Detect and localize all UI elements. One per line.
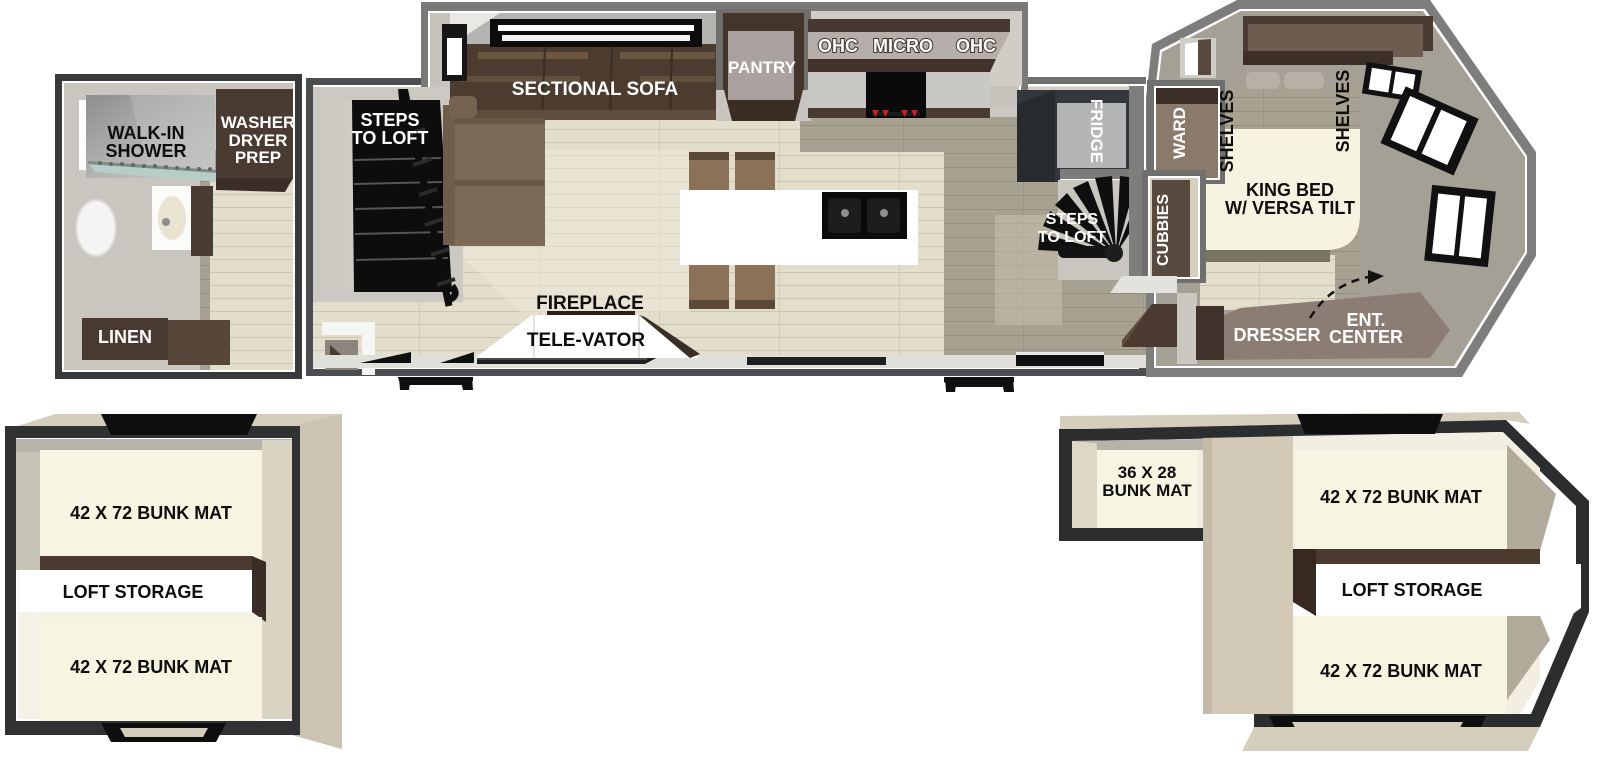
svg-text:FRIDGE: FRIDGE [1087, 99, 1106, 163]
svg-text:42 X 72 BUNK MAT: 42 X 72 BUNK MAT [1320, 661, 1482, 681]
svg-text:MICRO: MICRO [873, 36, 933, 56]
svg-text:BUNK MAT: BUNK MAT [1102, 481, 1192, 500]
svg-text:WARD: WARD [1170, 107, 1189, 159]
svg-text:PANTRY: PANTRY [728, 58, 797, 77]
svg-text:LOFT STORAGE: LOFT STORAGE [1342, 580, 1483, 600]
svg-text:SHOWER: SHOWER [106, 141, 187, 161]
svg-text:SECTIONAL SOFA: SECTIONAL SOFA [512, 79, 679, 100]
svg-text:OHC: OHC [956, 36, 996, 56]
svg-text:42 X 72 BUNK MAT: 42 X 72 BUNK MAT [70, 503, 232, 523]
svg-text:STEPS: STEPS [360, 110, 419, 130]
svg-text:SHELVES: SHELVES [1217, 90, 1237, 173]
svg-text:CUBBIES: CUBBIES [1155, 194, 1172, 266]
svg-text:W/ VERSA TILT: W/ VERSA TILT [1225, 198, 1355, 218]
svg-text:STEPS: STEPS [1046, 211, 1099, 228]
svg-text:CENTER: CENTER [1329, 327, 1403, 347]
svg-text:FIREPLACE: FIREPLACE [536, 293, 644, 314]
svg-text:OHC: OHC [818, 36, 858, 56]
svg-text:SHELVES: SHELVES [1333, 70, 1353, 153]
svg-text:36 X 28: 36 X 28 [1118, 463, 1177, 482]
svg-text:TELE-VATOR: TELE-VATOR [527, 330, 646, 351]
svg-text:DRESSER: DRESSER [1233, 325, 1320, 345]
svg-text:PREP: PREP [235, 148, 281, 167]
svg-text:LINEN: LINEN [98, 327, 152, 347]
svg-text:42 X 72 BUNK MAT: 42 X 72 BUNK MAT [70, 657, 232, 677]
svg-text:42 X 72 BUNK MAT: 42 X 72 BUNK MAT [1320, 487, 1482, 507]
svg-text:TO LOFT: TO LOFT [352, 128, 429, 148]
svg-text:LOFT STORAGE: LOFT STORAGE [63, 582, 204, 602]
svg-text:WASHER: WASHER [221, 113, 296, 132]
svg-text:TO LOFT: TO LOFT [1038, 229, 1106, 246]
svg-text:WALK-IN: WALK-IN [108, 123, 185, 143]
svg-text:KING BED: KING BED [1246, 180, 1334, 200]
